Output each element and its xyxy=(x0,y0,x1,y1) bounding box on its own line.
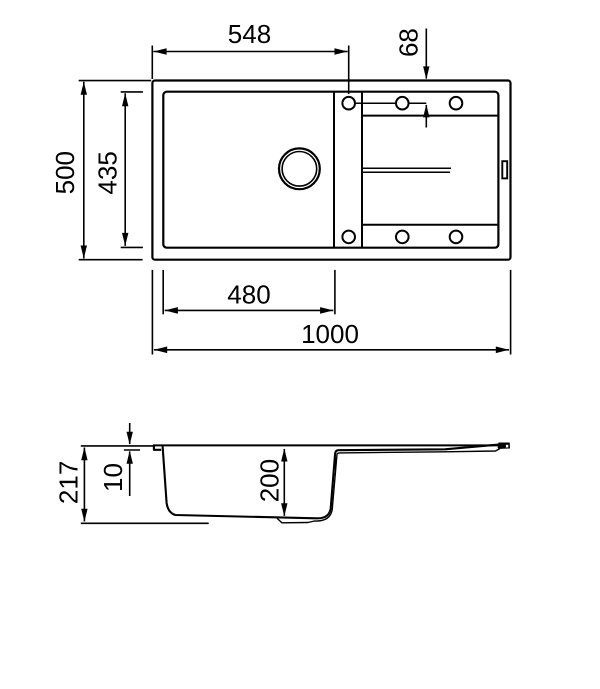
svg-text:500: 500 xyxy=(50,151,80,194)
svg-text:480: 480 xyxy=(227,280,270,310)
svg-text:68: 68 xyxy=(394,28,424,57)
svg-text:435: 435 xyxy=(92,151,122,194)
svg-text:10: 10 xyxy=(98,463,128,492)
svg-text:1000: 1000 xyxy=(301,319,359,349)
svg-text:200: 200 xyxy=(255,459,285,502)
svg-text:548: 548 xyxy=(228,19,271,49)
svg-text:217: 217 xyxy=(54,461,84,504)
